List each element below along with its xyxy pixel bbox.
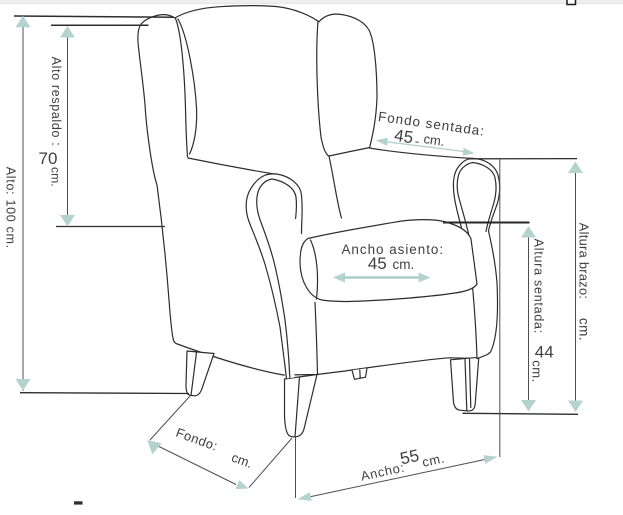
svg-text:70: 70 <box>39 149 58 168</box>
svg-text:cm.: cm. <box>393 257 415 272</box>
svg-text:Altura brazo:: Altura brazo: <box>577 223 592 299</box>
svg-text:cm.: cm. <box>529 360 544 382</box>
svg-text:45: 45 <box>368 254 387 273</box>
svg-text:Ancho asiento:: Ancho asiento: <box>342 242 445 257</box>
svg-text:cm.: cm. <box>577 318 592 341</box>
svg-text:Alto respaldo :: Alto respaldo : <box>49 57 63 147</box>
svg-text:55: 55 <box>398 446 420 469</box>
svg-text:Alto: 100 cm.: Alto: 100 cm. <box>4 167 18 249</box>
svg-text:cm.: cm. <box>48 167 62 187</box>
svg-text:cm.: cm. <box>423 131 446 149</box>
svg-text:45: 45 <box>393 126 414 147</box>
svg-text:44: 44 <box>535 342 554 361</box>
svg-text:Altura sentada:: Altura sentada: <box>531 239 545 334</box>
